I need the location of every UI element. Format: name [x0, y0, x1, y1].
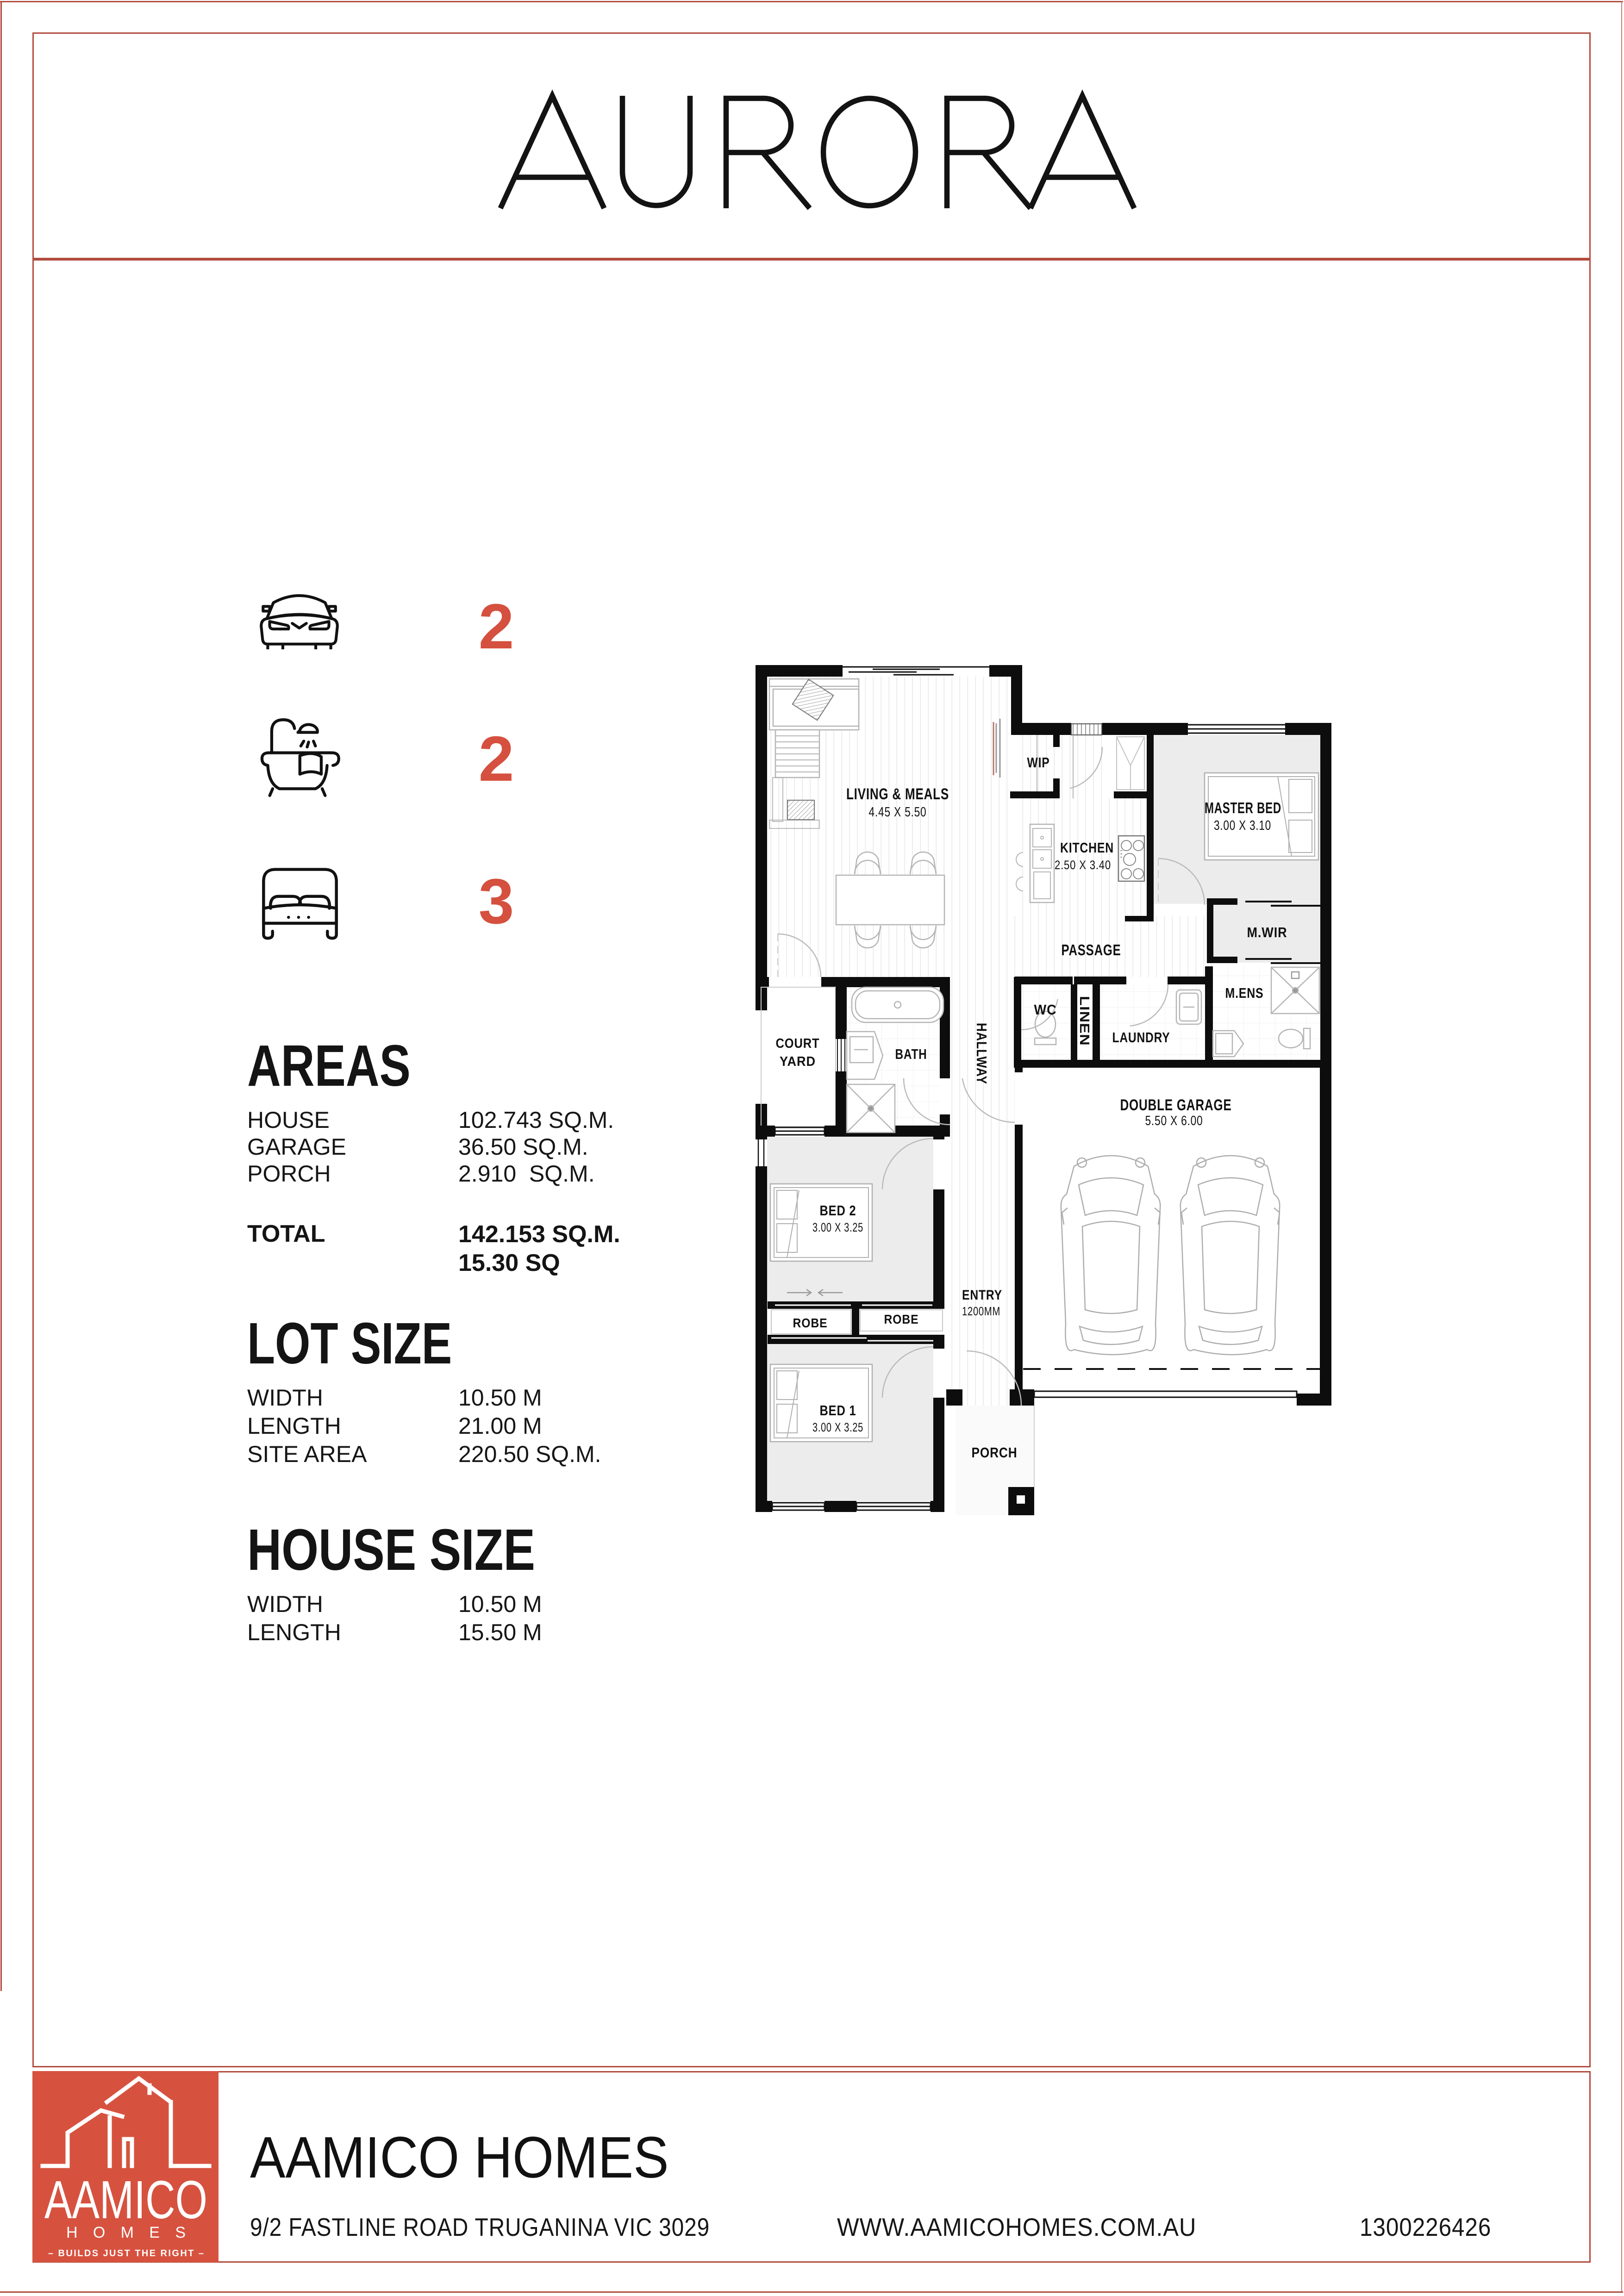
svg-text:COURT: COURT [776, 1036, 820, 1051]
svg-text:ENTRY: ENTRY [962, 1288, 1002, 1303]
svg-text:WC: WC [1034, 1002, 1057, 1018]
svg-text:AAMICO: AAMICO [44, 2170, 207, 2230]
svg-text:2.50 X 3.40: 2.50 X 3.40 [1055, 858, 1111, 872]
svg-text:LIVING & MEALS: LIVING & MEALS [846, 785, 949, 803]
svg-text:M.WIR: M.WIR [1247, 924, 1287, 940]
svg-text:LAUNDRY: LAUNDRY [1112, 1029, 1170, 1045]
svg-text:YARD: YARD [780, 1054, 816, 1069]
svg-text:BATH: BATH [895, 1046, 927, 1062]
svg-text:BED 1: BED 1 [820, 1402, 856, 1419]
svg-text:5.50 X 6.00: 5.50 X 6.00 [1145, 1114, 1203, 1128]
svg-text:DOUBLE GARAGE: DOUBLE GARAGE [1120, 1096, 1232, 1114]
svg-text:1200MM: 1200MM [962, 1304, 1000, 1318]
svg-text:MASTER BED: MASTER BED [1205, 799, 1281, 816]
svg-text:KITCHEN: KITCHEN [1060, 840, 1114, 856]
svg-text:BED 2: BED 2 [820, 1202, 856, 1219]
svg-text:HALLWAY: HALLWAY [974, 1023, 990, 1084]
svg-text:PORCH: PORCH [972, 1444, 1018, 1461]
svg-text:3.00 X 3.25: 3.00 X 3.25 [812, 1220, 863, 1234]
svg-text:4.45 X 5.50: 4.45 X 5.50 [869, 805, 927, 820]
svg-text:3.00 X 3.25: 3.00 X 3.25 [812, 1420, 863, 1434]
svg-text:LINEN: LINEN [1077, 996, 1092, 1046]
svg-text:3.00 X 3.10: 3.00 X 3.10 [1214, 818, 1271, 833]
svg-text:– BUILDS JUST THE RIGHT –: – BUILDS JUST THE RIGHT – [48, 2248, 204, 2259]
svg-text:WIP: WIP [1027, 754, 1050, 771]
svg-text:M.ENS: M.ENS [1225, 985, 1264, 1001]
svg-text:ROBE: ROBE [884, 1312, 919, 1326]
svg-text:ROBE: ROBE [793, 1316, 828, 1330]
svg-text:PASSAGE: PASSAGE [1062, 941, 1121, 958]
